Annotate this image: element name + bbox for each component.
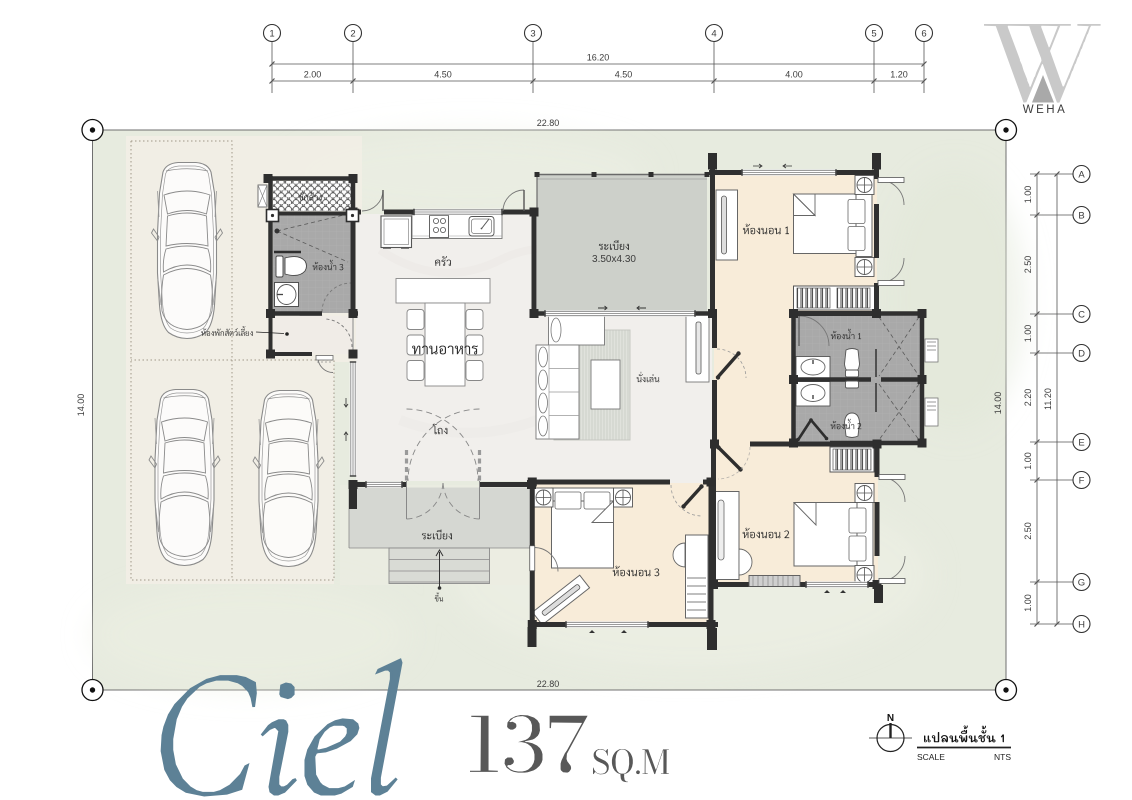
svg-text:1.20: 1.20 bbox=[890, 70, 908, 80]
svg-text:WEHA: WEHA bbox=[1023, 104, 1068, 116]
svg-text:4.50: 4.50 bbox=[615, 70, 633, 80]
svg-text:6: 6 bbox=[921, 29, 926, 40]
svg-text:3: 3 bbox=[530, 29, 535, 40]
svg-text:14.00: 14.00 bbox=[76, 394, 86, 417]
svg-text:1.00: 1.00 bbox=[1023, 186, 1033, 204]
svg-text:4.50: 4.50 bbox=[434, 70, 452, 80]
svg-text:2.50: 2.50 bbox=[1023, 256, 1033, 274]
svg-text:F: F bbox=[1079, 476, 1085, 487]
svg-text:5: 5 bbox=[871, 29, 876, 40]
svg-text:22.80: 22.80 bbox=[537, 679, 560, 689]
svg-text:1.00: 1.00 bbox=[1023, 452, 1033, 470]
svg-text:C: C bbox=[1078, 310, 1085, 321]
svg-text:1: 1 bbox=[269, 29, 274, 40]
svg-text:G: G bbox=[1078, 578, 1085, 589]
svg-text:4: 4 bbox=[711, 29, 716, 40]
svg-text:2.00: 2.00 bbox=[304, 70, 322, 80]
svg-text:D: D bbox=[1078, 349, 1085, 360]
svg-text:A: A bbox=[1078, 170, 1085, 181]
svg-text:16.20: 16.20 bbox=[587, 53, 610, 63]
svg-text:1.00: 1.00 bbox=[1023, 594, 1033, 612]
svg-text:3.50x4.30: 3.50x4.30 bbox=[592, 254, 636, 265]
svg-text:B: B bbox=[1078, 211, 1084, 222]
svg-text:11.20: 11.20 bbox=[1043, 388, 1053, 410]
svg-text:H: H bbox=[1078, 620, 1085, 631]
svg-text:4.00: 4.00 bbox=[785, 70, 803, 80]
svg-text:22.80: 22.80 bbox=[537, 118, 560, 128]
svg-text:E: E bbox=[1078, 438, 1084, 449]
svg-text:2.50: 2.50 bbox=[1023, 522, 1033, 540]
svg-text:14.00: 14.00 bbox=[993, 392, 1003, 415]
svg-text:2: 2 bbox=[350, 29, 355, 40]
svg-text:1.00: 1.00 bbox=[1023, 325, 1033, 343]
svg-text:N: N bbox=[887, 713, 894, 724]
svg-text:SCALE: SCALE bbox=[917, 752, 945, 762]
svg-text:2.20: 2.20 bbox=[1023, 389, 1033, 407]
svg-text:NTS: NTS bbox=[994, 752, 1011, 762]
